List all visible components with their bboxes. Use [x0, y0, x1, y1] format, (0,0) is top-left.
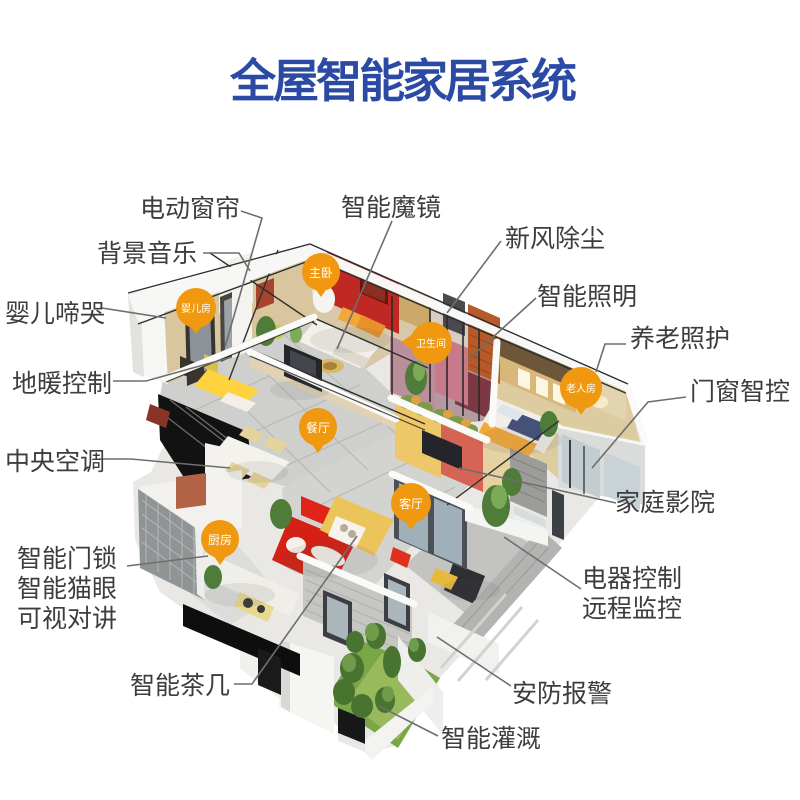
svg-text:中央空调: 中央空调: [5, 448, 105, 476]
svg-text:远程监控: 远程监控: [582, 595, 682, 623]
svg-text:电动窗帘: 电动窗帘: [140, 195, 240, 223]
svg-text:婴儿啼哭: 婴儿啼哭: [5, 300, 105, 328]
svg-text:地暖控制: 地暖控制: [12, 370, 112, 398]
svg-text:主卧: 主卧: [309, 266, 333, 280]
svg-text:智能门锁: 智能门锁: [17, 545, 117, 573]
svg-text:养老照护: 养老照护: [630, 325, 730, 353]
svg-text:全屋智能家居系统: 全屋智能家居系统: [229, 55, 576, 107]
svg-text:背景音乐: 背景音乐: [97, 240, 197, 268]
svg-text:新风除尘: 新风除尘: [505, 225, 605, 253]
svg-text:安防报警: 安防报警: [512, 680, 612, 708]
svg-text:智能魔镜: 智能魔镜: [341, 194, 441, 222]
svg-text:客厅: 客厅: [399, 496, 423, 511]
svg-text:餐厅: 餐厅: [306, 420, 330, 435]
svg-text:卫生间: 卫生间: [416, 337, 446, 350]
svg-text:智能茶几: 智能茶几: [130, 672, 230, 700]
svg-text:老人房: 老人房: [566, 382, 596, 395]
svg-text:门窗智控: 门窗智控: [690, 378, 790, 406]
svg-text:智能猫眼: 智能猫眼: [17, 575, 117, 603]
svg-text:家庭影院: 家庭影院: [615, 489, 715, 517]
svg-text:电器控制: 电器控制: [582, 565, 682, 593]
svg-text:厨房: 厨房: [208, 532, 232, 547]
svg-text:智能照明: 智能照明: [537, 283, 637, 311]
svg-text:智能灌溉: 智能灌溉: [441, 725, 541, 753]
svg-text:可视对讲: 可视对讲: [17, 605, 117, 633]
svg-text:婴儿房: 婴儿房: [181, 302, 211, 315]
